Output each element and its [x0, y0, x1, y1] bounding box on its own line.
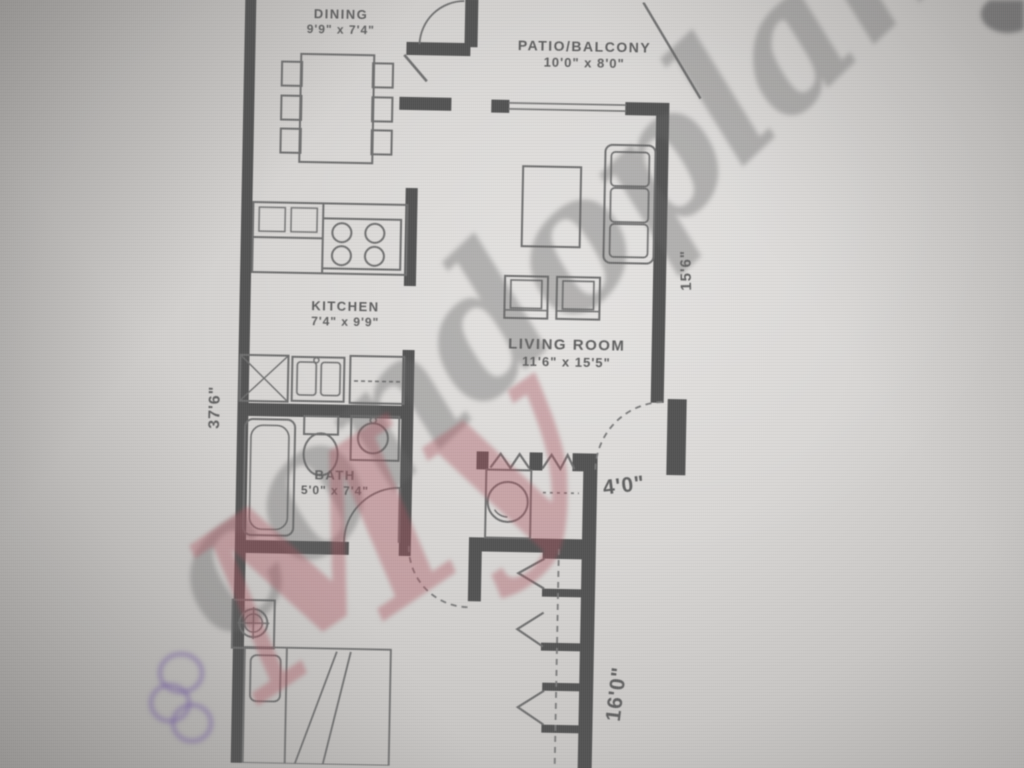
balcony-wall-left	[491, 100, 509, 113]
closet-bottom-wall	[469, 537, 596, 553]
kitchen-sink	[292, 357, 345, 402]
dimension-label-4-0: 4'0"	[602, 472, 647, 501]
hall-closet-shelf-wall-3	[541, 643, 581, 652]
hall-closet-shelf-wall-2	[542, 589, 582, 598]
entry-door-jog-wall	[666, 399, 686, 475]
entry-vertical-wall	[464, 0, 478, 47]
room-label-kitchen: KITCHEN 7'4" x 9'9"	[311, 298, 380, 329]
entry-bottom-wall	[399, 97, 451, 111]
dining-chair	[280, 129, 300, 153]
closet-post-a	[476, 451, 488, 469]
floor-plan-linework	[0, 0, 1024, 768]
dining-chair	[373, 63, 393, 87]
dining-chair	[371, 130, 391, 154]
dining-chair	[281, 96, 301, 120]
bedroom-door-swing	[408, 546, 469, 607]
kitchen-counter	[252, 202, 407, 275]
coffee-table	[522, 166, 582, 247]
hall-dimension-line	[555, 549, 559, 767]
stove	[322, 218, 401, 269]
bed	[243, 647, 391, 766]
room-name: LIVING ROOM	[508, 335, 626, 354]
balcony-door-arc	[420, 0, 465, 45]
bedroom-top-wall	[235, 540, 349, 555]
hall-right-wall	[578, 453, 598, 768]
room-name: PATIO/BALCONY	[518, 37, 652, 56]
bathtub	[243, 419, 295, 536]
unit-entry-door-swing	[595, 401, 665, 471]
dishwasher-counter	[350, 356, 405, 404]
room-size: 7'4" x 9'9"	[311, 314, 380, 329]
balcony-window	[508, 103, 626, 111]
floor-plan-photo: DINING 9'9" x 7'4" PATIO/BALCONY 10'0" x…	[0, 0, 1024, 768]
room-size: 11'6" x 15'5"	[508, 353, 626, 370]
dimension-label-37-6: 37'6"	[206, 386, 225, 429]
closet-post-b	[529, 452, 542, 470]
floor-plan-drawing: DINING 9'9" x 7'4" PATIO/BALCONY 10'0" x…	[0, 0, 1024, 768]
hall-closet-shelf-wall-5	[541, 725, 579, 734]
room-size: 5'0" x 7'4"	[301, 483, 369, 498]
room-size: 9'9" x 7'4"	[307, 22, 375, 37]
room-name: DINING	[307, 6, 375, 22]
washer	[485, 470, 531, 539]
hall-closet-shelf-wall-4	[542, 683, 580, 692]
dining-chair	[372, 97, 392, 121]
room-name: BATH	[301, 467, 369, 483]
dimension-label-15-6: 15'6"	[677, 250, 695, 291]
bath-sink	[351, 416, 400, 461]
entry-top-wall	[406, 42, 470, 56]
kitchen-bath-right-wall	[399, 350, 415, 556]
hall-closet-shelf-wall-1	[543, 551, 583, 560]
room-name: KITCHEN	[311, 298, 380, 314]
room-label-dining: DINING 9'9" x 7'4"	[307, 6, 376, 37]
entry-door	[404, 0, 465, 82]
sofa	[603, 145, 655, 264]
room-label-living-room: LIVING ROOM 11'6" x 15'5"	[508, 335, 626, 370]
dining-chair	[282, 62, 302, 86]
room-size: 10'0" x 8'0"	[517, 54, 651, 72]
armchair-1	[504, 276, 548, 319]
armchair-2	[556, 277, 600, 320]
room-label-patio-balcony: PATIO/BALCONY 10'0" x 8'0"	[517, 37, 651, 72]
room-label-bath: BATH 5'0" x 7'4"	[301, 467, 370, 498]
closet-shelf-line	[543, 493, 579, 494]
dining-table	[280, 54, 393, 164]
